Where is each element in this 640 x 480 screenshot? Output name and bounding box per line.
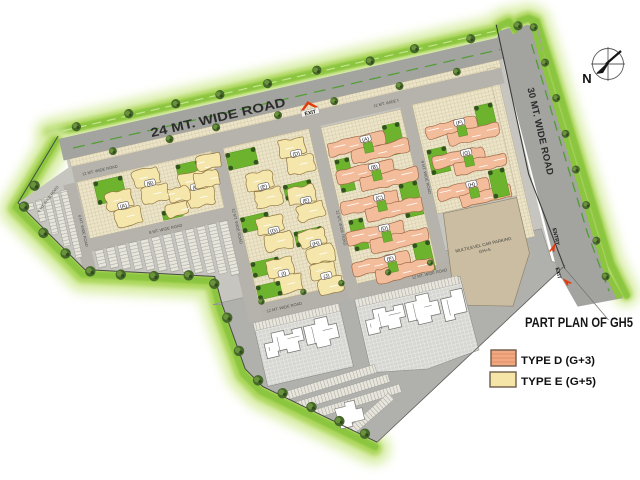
svg-text:TYPE D (G+3): TYPE D (G+3)	[521, 355, 595, 367]
svg-text:TYPE E (G+5): TYPE E (G+5)	[521, 376, 596, 388]
svg-text:PART PLAN OF GH5: PART PLAN OF GH5	[525, 315, 633, 330]
svg-text:N: N	[582, 71, 591, 86]
